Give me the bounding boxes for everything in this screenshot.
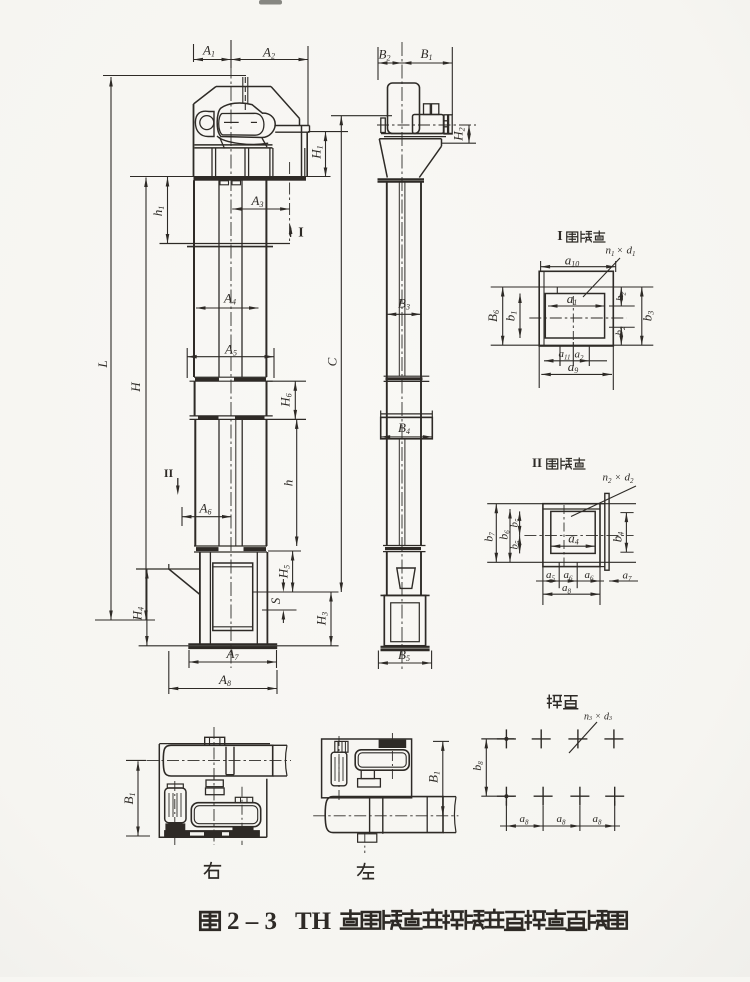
svg-text:h: h [280,480,295,487]
svg-text:TH: TH [295,908,332,935]
svg-text:L: L [95,360,110,368]
svg-text:II: II [532,455,542,470]
svg-text:I: I [298,226,303,241]
svg-text:×: × [595,711,600,721]
svg-text:II: II [164,466,174,480]
svg-text:2 – 3: 2 – 3 [227,908,277,935]
svg-text:S: S [268,597,283,604]
svg-text:C: C [324,357,339,366]
svg-text:×: × [615,472,621,483]
svg-text:×: × [617,245,623,256]
svg-text:I: I [557,229,562,244]
svg-text:H: H [128,382,143,393]
